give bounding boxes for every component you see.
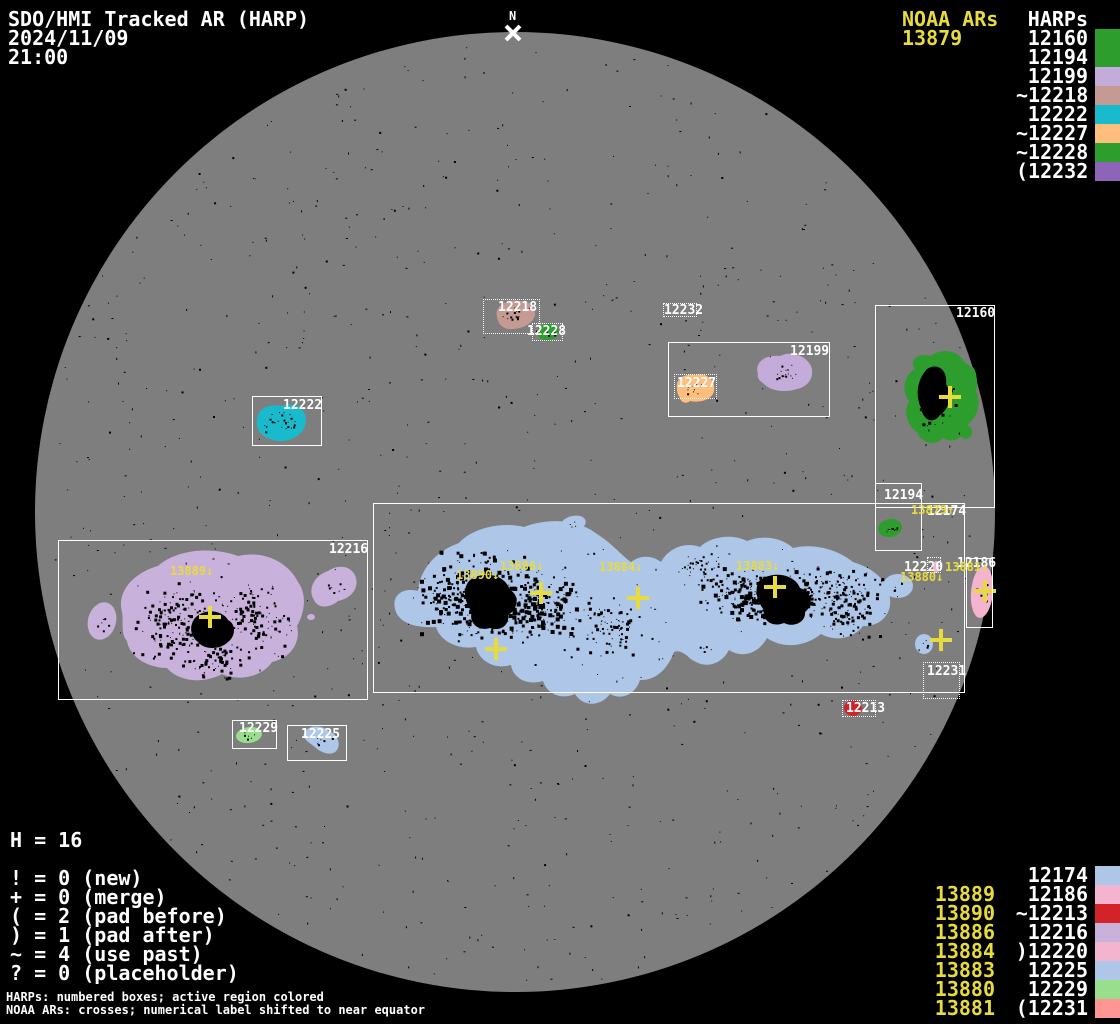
- harp-color-swatch: [1095, 942, 1120, 961]
- harp-color-swatch: [1095, 980, 1120, 999]
- harp-color-swatch: [1095, 904, 1120, 923]
- stat-placeholder: ? = 0 (placeholder): [10, 964, 239, 983]
- harp-color-swatch: [1095, 67, 1120, 86]
- harps-legend-entry: (12232: [1016, 162, 1088, 181]
- harp-color-swatch: [1095, 48, 1120, 67]
- noaa-legend-entry: 13881: [900, 999, 995, 1018]
- harp-color-swatch: [1095, 923, 1120, 942]
- harp-map-screen: 1216012194121991221812222122271222812232…: [0, 0, 1120, 1024]
- harp-color-swatch: [1095, 866, 1120, 885]
- noaa-ar-13879: 13879: [902, 29, 962, 48]
- harp-color-swatch: [1095, 885, 1120, 904]
- footer-harps-note: HARPs: numbered boxes; active region col…: [6, 991, 324, 1003]
- harp-color-swatch: [1095, 143, 1120, 162]
- footer-noaa-note: NOAA ARs: crosses; numerical label shift…: [6, 1004, 425, 1016]
- harp-count: H = 16: [10, 831, 82, 850]
- chrome-layer: SDO/HMI Tracked AR (HARP) 2024/11/09 21:…: [0, 0, 1120, 1024]
- harp-color-swatch: [1095, 162, 1120, 181]
- harp-color-swatch: [1095, 29, 1120, 48]
- harp-color-swatch: [1095, 86, 1120, 105]
- harp-color-swatch: [1095, 999, 1120, 1018]
- north-label: N: [509, 10, 516, 22]
- harps-legend-entry: (12231: [1002, 999, 1088, 1018]
- map-time: 21:00: [8, 48, 68, 67]
- harp-color-swatch: [1095, 124, 1120, 143]
- harp-color-swatch: [1095, 961, 1120, 980]
- harp-color-swatch: [1095, 105, 1120, 124]
